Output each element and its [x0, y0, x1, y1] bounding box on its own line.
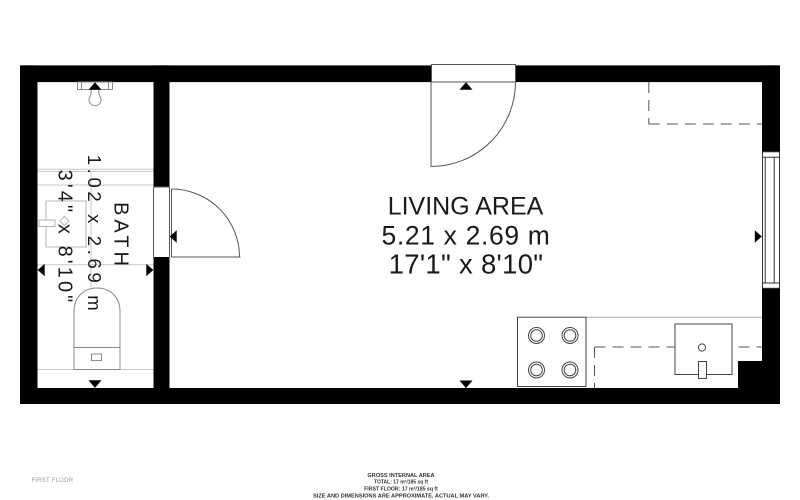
svg-text:17'1" x 8'10": 17'1" x 8'10"	[389, 248, 544, 279]
svg-text:BATH: BATH	[110, 202, 132, 270]
svg-text:FIRST FLOOR: 17 m²/185 sq ft: FIRST FLOOR: 17 m²/185 sq ft	[364, 486, 438, 492]
svg-text:FIRST FLOOR: FIRST FLOOR	[32, 478, 74, 484]
svg-text:GROSS INTERNAL AREA: GROSS INTERNAL AREA	[367, 473, 434, 479]
svg-text:1.02 x 2.69 m: 1.02 x 2.69 m	[84, 155, 105, 315]
svg-text:5.21 x 2.69 m: 5.21 x 2.69 m	[381, 220, 550, 250]
svg-text:3'4" x 8'10": 3'4" x 8'10"	[53, 170, 75, 306]
svg-text:LIVING AREA: LIVING AREA	[388, 193, 544, 221]
svg-text:SIZE AND DIMENSIONS ARE APPROX: SIZE AND DIMENSIONS ARE APPROXIMATE, ACT…	[313, 493, 489, 499]
svg-text:TOTAL: 17 m²/185 sq ft: TOTAL: 17 m²/185 sq ft	[374, 480, 428, 486]
